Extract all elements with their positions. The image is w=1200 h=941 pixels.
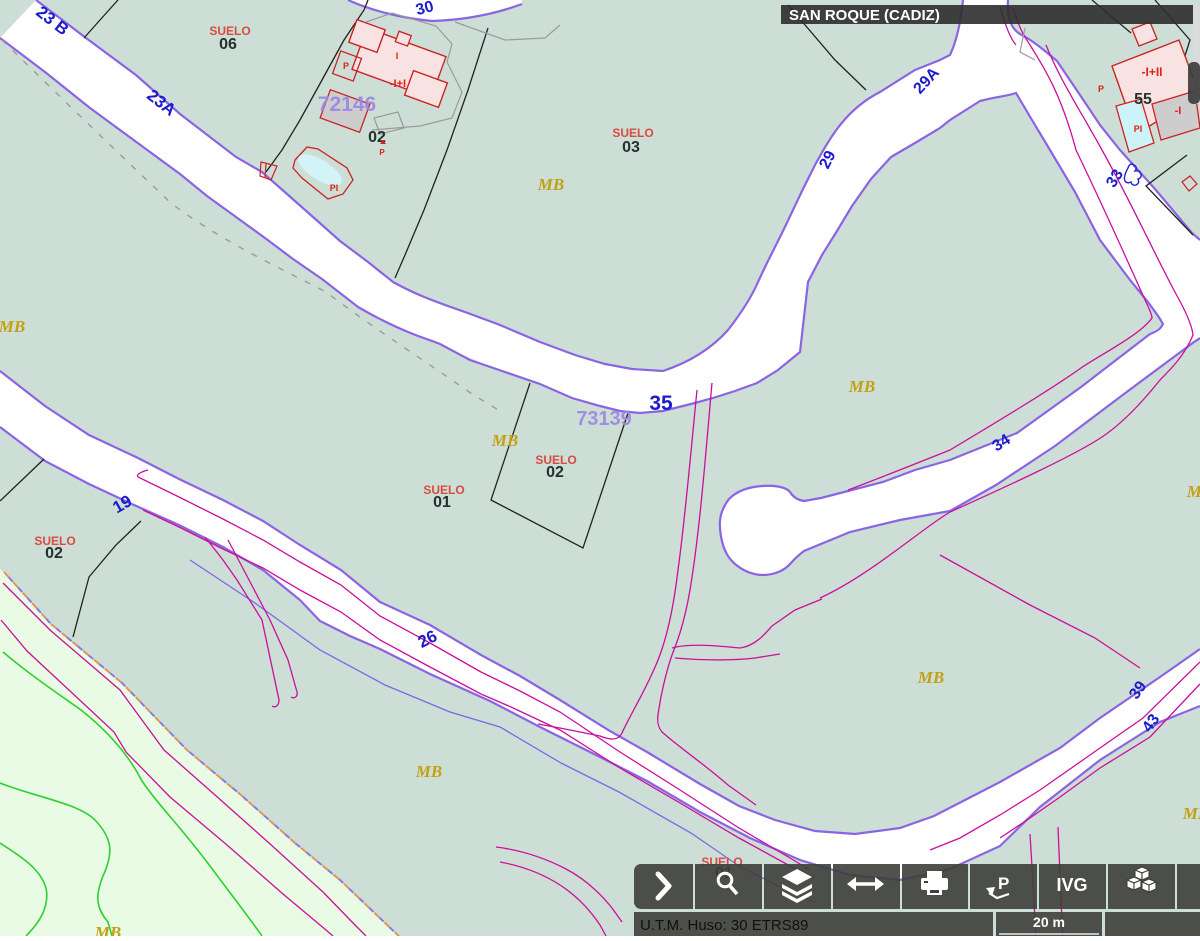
svg-text:MB: MB [1182,804,1200,823]
svg-text:20 m: 20 m [1033,914,1065,930]
svg-text:MB: MB [1186,482,1200,501]
svg-text:PI: PI [1134,124,1143,134]
svg-text:MB: MB [415,762,442,781]
svg-text:35: 35 [649,392,673,415]
svg-text:06: 06 [219,36,237,53]
svg-text:MB: MB [848,377,875,396]
svg-text:P: P [1098,84,1104,94]
svg-text:I: I [396,51,399,61]
svg-text:MB: MB [917,668,944,687]
svg-text:-I+I: -I+I [390,78,406,90]
svg-text:73139: 73139 [576,408,632,430]
svg-text:SAN ROQUE (CADIZ): SAN ROQUE (CADIZ) [789,7,940,24]
svg-text:-I: -I [1175,105,1182,117]
svg-text:IVG: IVG [1056,875,1087,895]
svg-text:P: P [343,61,349,71]
svg-text:-I+II: -I+II [1141,65,1162,79]
svg-text:02: 02 [546,464,564,481]
svg-text:72146: 72146 [318,93,376,116]
svg-text:MB: MB [0,317,25,336]
svg-text:01: 01 [433,494,451,511]
svg-text:55: 55 [1134,91,1152,108]
svg-text:SUELO: SUELO [612,126,653,140]
svg-text:PI: PI [330,183,339,193]
svg-text:MB: MB [491,431,518,450]
svg-text:02: 02 [45,545,63,562]
svg-text:MB: MB [537,175,564,194]
svg-text:P: P [998,874,1009,893]
svg-text:P: P [379,148,385,157]
svg-text:03: 03 [622,139,640,156]
svg-text:U.T.M. Huso: 30 ETRS89: U.T.M. Huso: 30 ETRS89 [640,917,808,934]
